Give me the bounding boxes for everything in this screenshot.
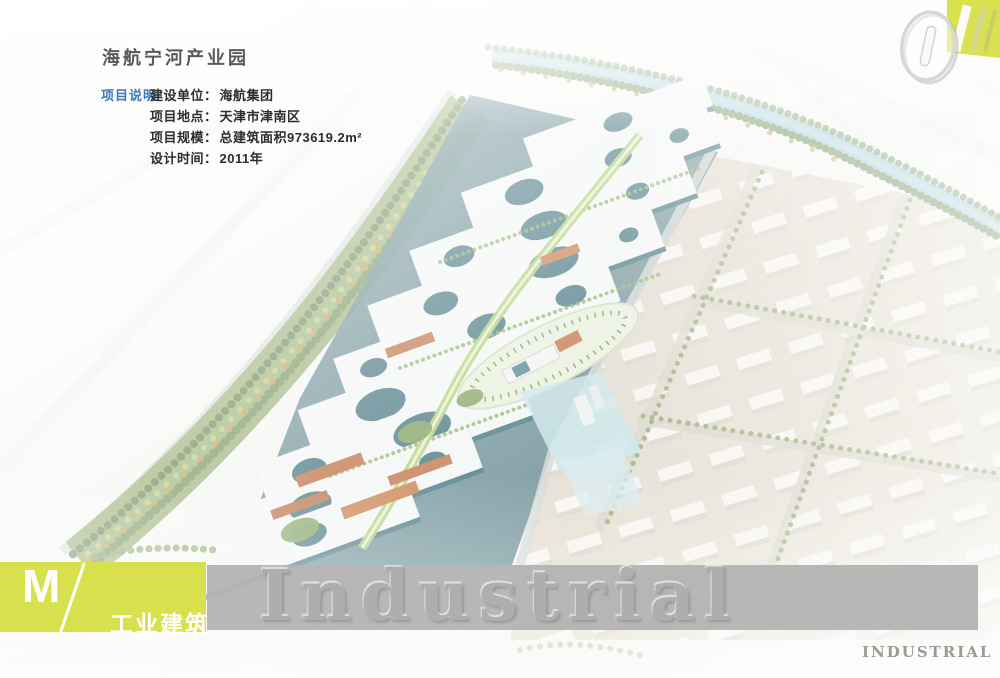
category-label: 工业建筑 [110,605,210,639]
info-label: 项目规模： [150,130,218,145]
industrial-banner: Industrial [207,565,978,630]
info-label: 项目地点： [150,109,218,124]
info-value: 天津市津南区 [220,109,301,124]
info-row-location: 项目地点：天津市津南区 [150,106,362,127]
info-label: 建设单位： [150,88,218,103]
page-title: 海航宁河产业园 [102,44,249,70]
info-row-scale: 项目规模：总建筑面积973619.2m² [150,127,362,148]
project-info-section-label: 项目说明 [101,85,157,104]
category-letter: M [22,563,60,609]
info-value: 总建筑面积973619.2m² [220,130,363,145]
page-number-zero [892,4,966,94]
portfolio-page: 海航宁河产业园 项目说明 建设单位：海航集团 项目地点：天津市津南区 项目规模：… [0,0,1000,678]
info-row-owner: 建设单位：海航集团 [150,85,362,106]
project-info-list: 建设单位：海航集团 项目地点：天津市津南区 项目规模：总建筑面积973619.2… [150,85,362,169]
industrial-corner-label: INDUSTRIAL [862,643,992,661]
info-label: 设计时间： [150,151,218,166]
industrial-watermark: Industrial [259,565,740,630]
info-row-date: 设计时间：2011年 [150,148,362,169]
info-value: 海航集团 [220,88,274,103]
info-value: 2011年 [220,151,264,166]
